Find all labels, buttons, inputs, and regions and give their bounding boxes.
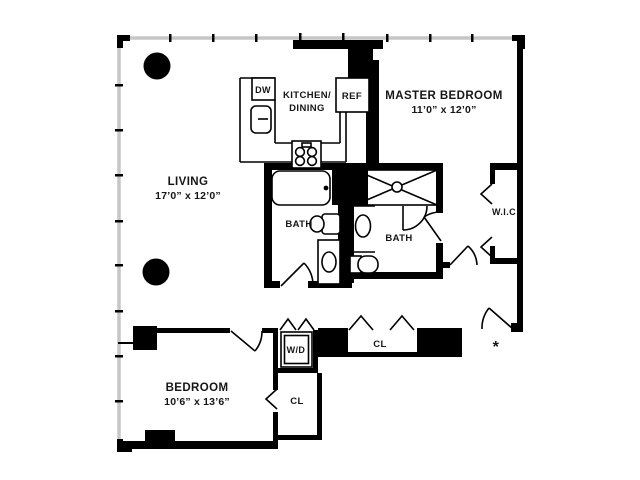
floor-plan-page: LIVING 17’0” x 12’0” KITCHEN/ DINING MAS… bbox=[0, 0, 640, 480]
dishwasher-label: DW bbox=[255, 85, 271, 95]
column bbox=[143, 259, 170, 286]
bedroom-closet-door bbox=[266, 389, 277, 409]
master-bedroom-label: MASTER BEDROOM bbox=[385, 90, 502, 102]
hall-closet-bifold bbox=[349, 316, 414, 330]
sink-icon bbox=[350, 256, 378, 273]
bedroom-label: BEDROOM bbox=[166, 382, 229, 394]
washer-dryer-bifold bbox=[280, 319, 314, 330]
entry-door bbox=[482, 308, 513, 329]
washer-dryer-label: W/D bbox=[287, 345, 306, 355]
kitchen-sink-icon bbox=[251, 106, 271, 133]
entry-marker: * bbox=[493, 339, 500, 356]
living-room-dims: 17’0” x 12’0” bbox=[155, 190, 221, 202]
column bbox=[144, 53, 171, 80]
stove-icon bbox=[292, 141, 321, 168]
kitchen-label-line1: KITCHEN/ bbox=[283, 90, 331, 101]
floor-plan-drawing: LIVING 17’0” x 12’0” KITCHEN/ DINING MAS… bbox=[0, 0, 640, 480]
kitchen-label-line2: DINING bbox=[289, 103, 325, 114]
bathtub-icon bbox=[272, 171, 330, 205]
window-wall-left bbox=[115, 37, 123, 446]
bath-left-label: BATH bbox=[285, 219, 312, 230]
vanity-sink-icon bbox=[318, 240, 340, 284]
bath-right-label: BATH bbox=[385, 233, 412, 244]
refrigerator-label: REF bbox=[342, 91, 362, 102]
hall-closet-label: CL bbox=[373, 339, 386, 350]
living-room-label: LIVING bbox=[168, 176, 209, 188]
toilet-icon bbox=[310, 214, 340, 234]
bedroom-dims: 10’6” x 13’6” bbox=[164, 396, 230, 408]
toilet-icon bbox=[352, 206, 375, 252]
wic-label: W.I.C bbox=[492, 207, 516, 217]
bedroom-door bbox=[231, 331, 262, 351]
bedroom-closet-label: CL bbox=[290, 396, 303, 407]
master-bedroom-dims: 11’0” x 12’0” bbox=[411, 104, 476, 116]
hall-door bbox=[450, 246, 477, 265]
